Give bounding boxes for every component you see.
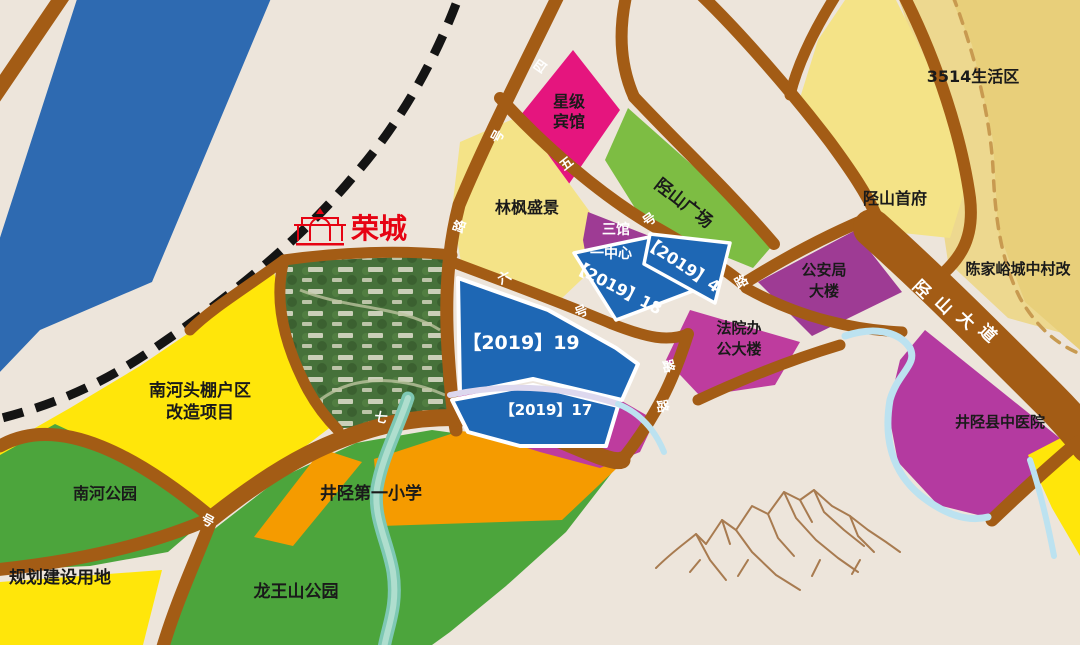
label-hotel-1: 星级 [553,92,586,111]
label-nanhetou-1: 南河头棚户区 [149,380,251,401]
label-fayuan-1: 法院办 [716,319,761,337]
label-hospital: 井陉县中医院 [955,413,1045,431]
label-linfeng: 林枫盛景 [495,198,559,217]
label-sanguan-2: 一中心 [590,245,632,262]
label-2019-19: 【2019】19 [462,331,579,354]
label-fayuan-2: 公大楼 [716,340,761,358]
label-guihua: 规划建设用地 [9,567,111,588]
label-nanhe-park: 南河公园 [73,484,137,503]
label-primary-school: 井陉第一小学 [320,483,422,504]
label-chenjiayu: 陈家峪城中村改 [965,260,1071,278]
label-sanguan-1: 三馆 [602,221,630,238]
label-hotel-2: 宾馆 [553,112,585,131]
location-map: 南河头棚户区 改造项目 南河公园 规划建设用地 龙王山公园 井陉第一小学 林枫盛… [0,0,1080,645]
label-nanhetou-2: 改造项目 [166,402,234,423]
label-gonganju-1: 公安局 [801,261,846,279]
label-gonganju-2: 大楼 [809,282,839,300]
logo-text: 荣城 [351,212,407,245]
label-3514: 3514生活区 [927,67,1020,86]
label-shoufu: 陉山首府 [863,189,927,208]
label-longwangshan: 龙王山公园 [253,581,339,602]
label-2019-17: 【2019】17 [500,401,593,419]
